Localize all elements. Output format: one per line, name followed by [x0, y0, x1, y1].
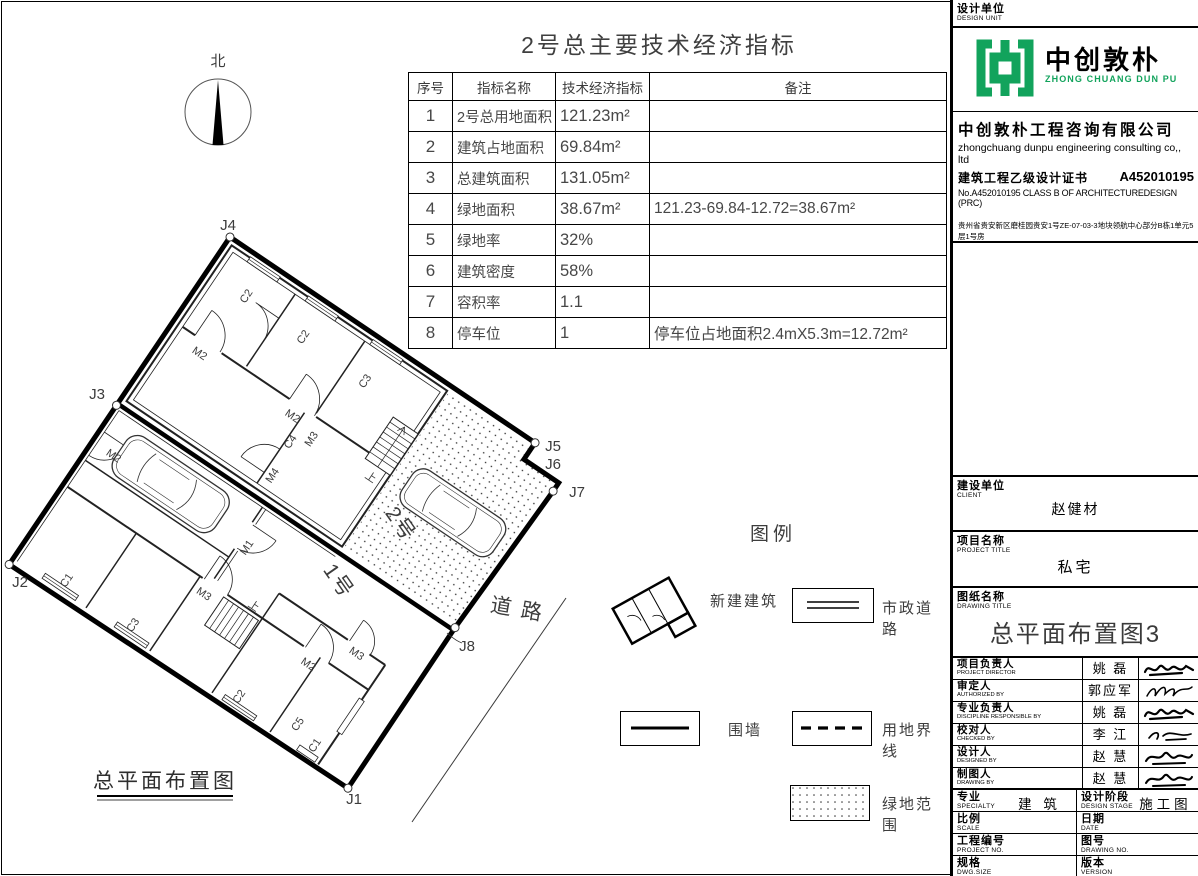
personnel-name: 李 江 [1083, 724, 1139, 746]
room-label: C2 [295, 328, 313, 346]
personnel-row: 专业负责人DISCIPLINE RESPONSIBLE BY 姚 磊 [953, 702, 1198, 724]
room-label: 上 [363, 469, 379, 486]
indicator-row: 12号总用地面积121.23m² [409, 101, 947, 132]
drawing-title-section: 图纸名称 DRAWING TITLE 总平面布置图3 [953, 588, 1198, 658]
svg-text:北: 北 [210, 53, 225, 70]
indicator-cell-value: 69.84m² [556, 132, 650, 163]
indicator-cell-note [650, 287, 947, 318]
boundary-point-label: J2 [12, 574, 28, 591]
meta-row: 专业SPECIALTY 建 筑 设计阶段DESIGN STAGE 施工图 [953, 790, 1198, 812]
drawing-title-label: 图纸名称 [957, 591, 1198, 603]
personnel-signature [1139, 746, 1198, 768]
meta-cell: 专业SPECIALTY 建 筑 [953, 790, 1076, 811]
personnel-signature [1139, 680, 1198, 702]
meta-row: 比例SCALE 日期DATE [953, 812, 1198, 834]
indicator-cell-note [650, 132, 947, 163]
meta-cell: 版本VERSION [1076, 856, 1198, 876]
design-unit-label: 设计单位 [957, 3, 1198, 15]
drawing-sheet: 北 道 路 [0, 0, 1198, 876]
indicator-cell-value: 1.1 [556, 287, 650, 318]
legend-label-green-area: 绿地范围 [882, 793, 948, 835]
boundary-point-label: J1 [346, 791, 362, 808]
certificate-en: No.A452010195 CLASS B OF ARCHITECTUREDES… [958, 188, 1194, 208]
indicator-row: 8停车位1停车位占地面积2.4mX5.3m=12.72m² [409, 318, 947, 349]
personnel-rows: 项目负责人PROJECT DIRECTOR 姚 磊 审定人AUTHORIZED … [953, 658, 1198, 790]
road-label: 道 路 [489, 594, 546, 626]
room-label: C4 [282, 433, 300, 451]
indicator-cell-note [650, 101, 947, 132]
indicator-cell-value: 131.05m² [556, 163, 650, 194]
drawing-title-label-en: DRAWING TITLE [957, 603, 1198, 611]
project-value: 私宅 [953, 556, 1198, 577]
legend-label-new-building: 新建建筑 [710, 590, 778, 611]
personnel-name: 姚 磊 [1083, 658, 1139, 680]
col-header-no: 序号 [409, 73, 453, 101]
meta-row: 规格DWG.SIZE 版本VERSION [953, 856, 1198, 876]
personnel-name: 姚 磊 [1083, 702, 1139, 724]
company-name-en: zhongchuang dunpu engineering consulting… [958, 142, 1194, 166]
logo-section: 中创敦朴 ZHONG CHUANG DUN PU [953, 28, 1198, 112]
building1-label: 1号 [318, 560, 358, 603]
meta-value [1003, 857, 1076, 876]
company-logo-icon [975, 38, 1035, 98]
indicator-table: 序号 指标名称 技术经济指标 备注 12号总用地面积121.23m²2建筑占地面… [408, 72, 947, 349]
meta-cell: 工程编号PROJECT NO. [953, 834, 1076, 855]
indicator-cell-no: 3 [409, 163, 453, 194]
indicator-cell-name: 总建筑面积 [453, 163, 556, 194]
indicator-cell-note: 停车位占地面积2.4mX5.3m=12.72m² [650, 318, 947, 349]
meta-value: 施工图 [1133, 791, 1198, 811]
indicator-cell-name: 停车位 [453, 318, 556, 349]
personnel-row: 制图人DRAWING BY 赵 慧 [953, 768, 1198, 790]
personnel-row: 审定人AUTHORIZED BY 郭应军 [953, 680, 1198, 702]
logo-name-en: ZHONG CHUANG DUN PU [1045, 74, 1177, 84]
indicator-row: 6建筑密度58% [409, 256, 947, 287]
legend-label-fence: 围墙 [728, 719, 762, 740]
logo-name-cn: 中创敦朴 [1045, 46, 1177, 74]
personnel-role: 设计人DESIGNED BY [953, 746, 1083, 768]
room-label: C2 [238, 287, 256, 305]
green-area-symbol [790, 785, 870, 821]
indicator-cell-note [650, 225, 947, 256]
meta-value [1127, 813, 1198, 833]
project-section: 项目名称 PROJECT TITLE 私宅 [953, 532, 1198, 588]
personnel-role: 审定人AUTHORIZED BY [953, 680, 1083, 702]
boundary-point-label: J3 [89, 386, 105, 403]
indicator-cell-no: 8 [409, 318, 453, 349]
meta-value [1003, 813, 1076, 833]
col-header-note: 备注 [650, 73, 947, 101]
design-unit-label-en: DESIGN UNIT [957, 15, 1198, 23]
meta-cell: 比例SCALE [953, 812, 1076, 833]
meta-cell: 日期DATE [1076, 812, 1198, 833]
blank-section [953, 243, 1198, 477]
client-value: 赵健材 [953, 499, 1198, 519]
personnel-row: 设计人DESIGNED BY 赵 慧 [953, 746, 1198, 768]
indicator-cell-note: 121.23-69.84-12.72=38.67m² [650, 194, 947, 225]
indicator-cell-name: 绿地率 [453, 225, 556, 256]
company-info-section: 中创敦朴工程咨询有限公司 zhongchuang dunpu engineeri… [953, 112, 1198, 243]
personnel-role: 项目负责人PROJECT DIRECTOR [953, 658, 1083, 680]
room-label: M3 [303, 430, 321, 449]
certificate-label: 建筑工程乙级设计证书 [958, 169, 1088, 186]
indicator-cell-value: 38.67m² [556, 194, 650, 225]
boundary-point-label: J6 [545, 456, 561, 473]
personnel-row: 校对人CHECKED BY 李 江 [953, 724, 1198, 746]
company-address: 贵州省贵安新区磨桂园贵安1号ZE-07-03-3地块领航中心部分B栋1单元5层1… [958, 220, 1194, 242]
design-unit-section: 设计单位 DESIGN UNIT [953, 0, 1198, 28]
personnel-role: 专业负责人DISCIPLINE RESPONSIBLE BY [953, 702, 1083, 724]
indicator-cell-no: 1 [409, 101, 453, 132]
indicator-cell-no: 7 [409, 287, 453, 318]
indicator-cell-no: 2 [409, 132, 453, 163]
indicator-table-body: 12号总用地面积121.23m²2建筑占地面积69.84m²3总建筑面积131.… [409, 101, 947, 349]
meta-value: 建 筑 [1003, 791, 1076, 811]
indicator-cell-no: 4 [409, 194, 453, 225]
indicator-cell-value: 32% [556, 225, 650, 256]
car-garage [107, 430, 235, 538]
project-label-en: PROJECT TITLE [957, 547, 1198, 555]
fence-symbol [620, 711, 700, 746]
boundary-point-label: J4 [220, 217, 236, 234]
personnel-role: 制图人DRAWING BY [953, 768, 1083, 790]
indicator-cell-value: 121.23m² [556, 101, 650, 132]
col-header-value: 技术经济指标 [556, 73, 650, 101]
meta-value [1129, 835, 1198, 855]
personnel-role: 校对人CHECKED BY [953, 724, 1083, 746]
room-label: 上 [246, 597, 262, 614]
road-edge-line [412, 598, 566, 822]
personnel-row: 项目负责人PROJECT DIRECTOR 姚 磊 [953, 658, 1198, 680]
meta-value [1127, 857, 1198, 876]
personnel-name: 郭应军 [1083, 680, 1139, 702]
indicator-cell-name: 建筑密度 [453, 256, 556, 287]
indicator-cell-no: 6 [409, 256, 453, 287]
meta-cell: 设计阶段DESIGN STAGE 施工图 [1076, 790, 1198, 811]
road-symbol [792, 588, 874, 623]
indicator-cell-name: 容积率 [453, 287, 556, 318]
indicator-cell-name: 建筑占地面积 [453, 132, 556, 163]
personnel-signature [1139, 702, 1198, 724]
indicator-row: 4绿地面积38.67m²121.23-69.84-12.72=38.67m² [409, 194, 947, 225]
indicator-table-title: 2号总主要技术经济指标 [408, 26, 910, 60]
indicator-row: 7容积率1.1 [409, 287, 947, 318]
personnel-signature [1139, 658, 1198, 680]
meta-row: 工程编号PROJECT NO. 图号DRAWING NO. [953, 834, 1198, 856]
indicator-row: 3总建筑面积131.05m² [409, 163, 947, 194]
indicator-cell-name: 2号总用地面积 [453, 101, 556, 132]
personnel-signature [1139, 768, 1198, 790]
room-label: C3 [356, 372, 374, 390]
indicator-row: 2建筑占地面积69.84m² [409, 132, 947, 163]
indicator-cell-value: 1 [556, 318, 650, 349]
meta-cell: 图号DRAWING NO. [1076, 834, 1198, 855]
new-building-icon [606, 563, 702, 659]
meta-cell: 规格DWG.SIZE [953, 856, 1076, 876]
project-label: 项目名称 [957, 535, 1198, 547]
meta-value [1005, 835, 1076, 855]
indicator-cell-note [650, 256, 947, 287]
legend-label-land-boundary: 用地界线 [882, 719, 948, 761]
indicator-row: 5绿地率32% [409, 225, 947, 256]
indicator-cell-note [650, 163, 947, 194]
certificate-number: A452010195 [1120, 169, 1194, 186]
title-block: 设计单位 DESIGN UNIT 中创敦朴 ZHONG CHUANG DUN P… [950, 0, 1198, 876]
land-boundary-symbol [792, 711, 872, 746]
client-section: 建设单位 CLIENT 赵健材 [953, 477, 1198, 532]
personnel-name: 赵 慧 [1083, 746, 1139, 768]
personnel-name: 赵 慧 [1083, 768, 1139, 790]
room-label: C5 [289, 715, 307, 733]
meta-rows: 专业SPECIALTY 建 筑 设计阶段DESIGN STAGE 施工图 比例S… [953, 790, 1198, 876]
window-symbol [42, 514, 364, 767]
client-label: 建设单位 [957, 480, 1198, 492]
boundary-point-label: J5 [545, 438, 561, 455]
legend-title: 图例 [750, 519, 796, 546]
boundary-point-label: J8 [459, 638, 475, 655]
window-symbol [247, 257, 403, 365]
company-name: 中创敦朴工程咨询有限公司 [958, 118, 1194, 140]
indicator-cell-value: 58% [556, 256, 650, 287]
indicator-cell-name: 绿地面积 [453, 194, 556, 225]
personnel-signature [1139, 724, 1198, 746]
legend: 图例 新建建筑 市政道路 围墙 用地界线 [600, 515, 948, 835]
north-arrow-icon: 北 [185, 53, 251, 145]
col-header-name: 指标名称 [453, 73, 556, 101]
plan-title: 总平面布置图 [93, 770, 237, 793]
boundary-point-label: J7 [569, 484, 585, 501]
legend-label-road: 市政道路 [882, 597, 948, 639]
indicator-cell-no: 5 [409, 225, 453, 256]
drawing-title-value: 总平面布置图3 [953, 614, 1198, 649]
